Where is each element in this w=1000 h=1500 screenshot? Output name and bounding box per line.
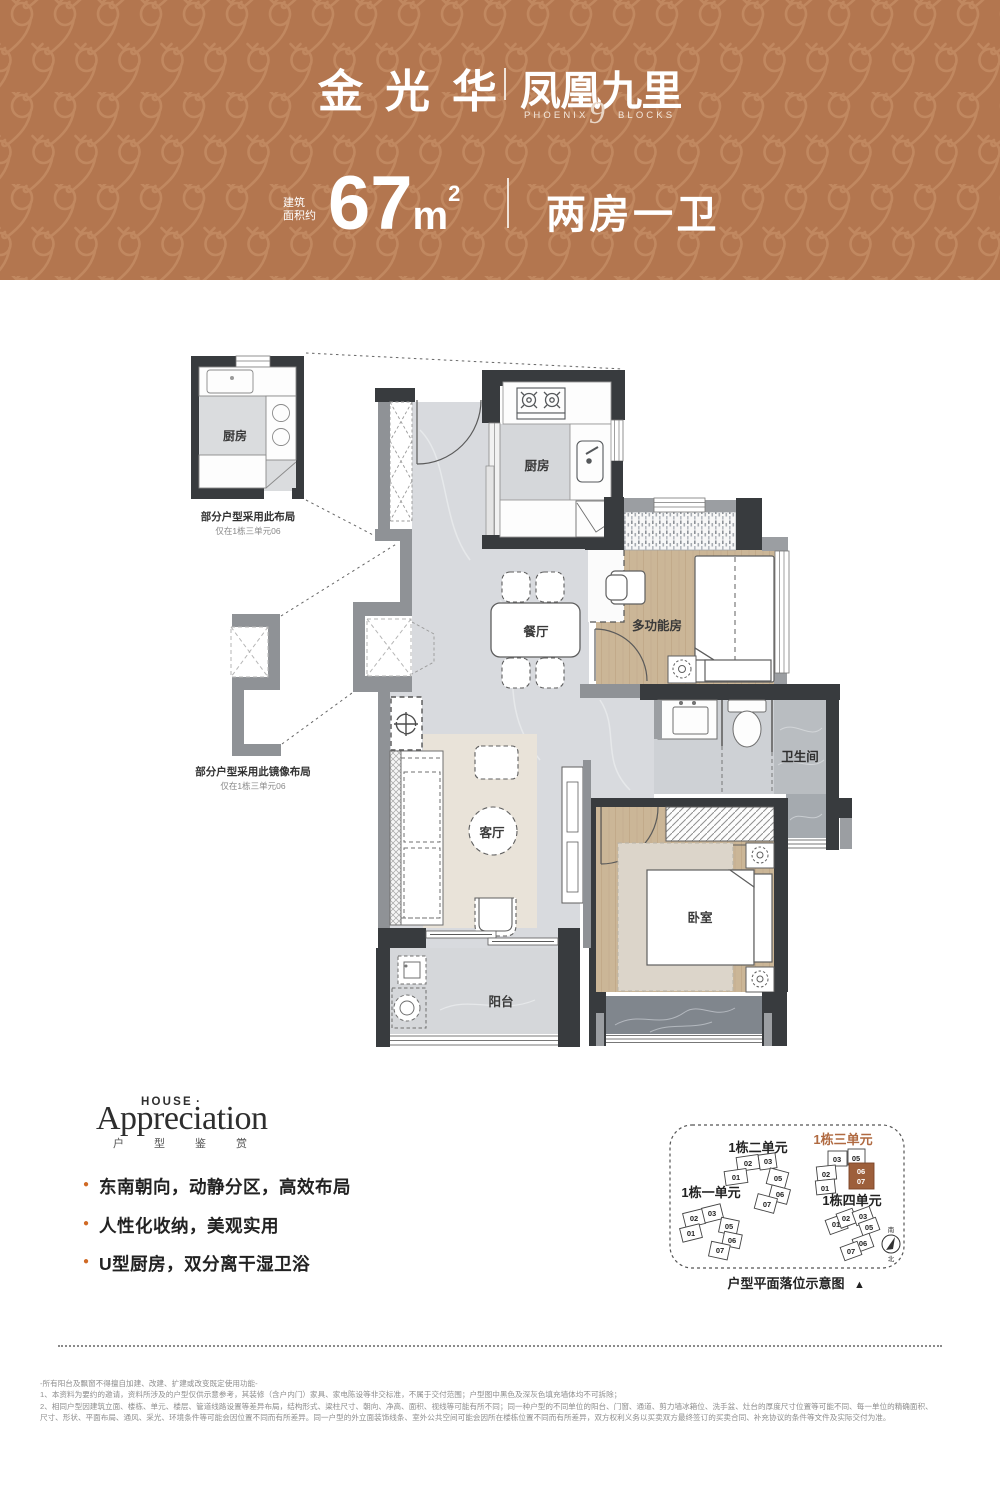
svg-text:02: 02 — [822, 1170, 830, 1179]
svg-text:北: 北 — [888, 1255, 895, 1263]
svg-text:07: 07 — [716, 1246, 724, 1255]
svg-text:07: 07 — [847, 1247, 855, 1256]
svg-text:06: 06 — [728, 1236, 736, 1245]
svg-text:厨房: 厨房 — [223, 428, 247, 443]
svg-text:01: 01 — [821, 1184, 829, 1193]
svg-text:02: 02 — [744, 1159, 752, 1168]
svg-text:03: 03 — [708, 1209, 716, 1218]
svg-text:部分户型采用此镜像布局: 部分户型采用此镜像布局 — [195, 765, 311, 778]
svg-text:阳台: 阳台 — [488, 994, 513, 1009]
svg-text:03: 03 — [859, 1212, 867, 1221]
svg-text:▲: ▲ — [854, 1279, 865, 1291]
svg-text:户型平面落位示意图: 户型平面落位示意图 — [727, 1276, 844, 1291]
svg-text:05: 05 — [725, 1222, 733, 1231]
svg-text:01: 01 — [732, 1173, 740, 1182]
svg-text:03: 03 — [764, 1157, 772, 1166]
svg-text:03: 03 — [833, 1155, 841, 1164]
svg-text:07: 07 — [763, 1200, 771, 1209]
svg-text:1栋二单元: 1栋二单元 — [728, 1140, 787, 1155]
svg-text:06: 06 — [857, 1167, 865, 1176]
svg-text:1栋一单元: 1栋一单元 — [681, 1185, 740, 1200]
svg-text:01: 01 — [687, 1229, 695, 1238]
svg-text:仅在1栋三单元06: 仅在1栋三单元06 — [215, 526, 280, 536]
svg-text:厨房: 厨房 — [524, 458, 549, 473]
svg-text:1栋三单元: 1栋三单元 — [813, 1132, 872, 1147]
svg-text:06: 06 — [859, 1239, 867, 1248]
svg-text:01: 01 — [832, 1220, 840, 1229]
svg-text:06: 06 — [776, 1190, 784, 1199]
svg-text:05: 05 — [865, 1223, 873, 1232]
svg-text:02: 02 — [842, 1214, 850, 1223]
svg-text:部分户型采用此布局: 部分户型采用此布局 — [201, 510, 296, 523]
svg-text:南: 南 — [888, 1225, 895, 1234]
svg-text:卫生间: 卫生间 — [781, 749, 819, 764]
svg-text:餐厅: 餐厅 — [522, 624, 549, 639]
svg-text:07: 07 — [857, 1177, 865, 1186]
svg-text:客厅: 客厅 — [478, 825, 505, 840]
svg-text:02: 02 — [690, 1214, 698, 1223]
svg-text:卧室: 卧室 — [687, 910, 713, 925]
svg-text:1栋四单元: 1栋四单元 — [822, 1193, 881, 1208]
svg-text:05: 05 — [774, 1174, 782, 1183]
svg-text:仅在1栋三单元06: 仅在1栋三单元06 — [220, 781, 285, 791]
svg-text:05: 05 — [852, 1154, 860, 1163]
svg-text:多功能房: 多功能房 — [632, 618, 682, 633]
